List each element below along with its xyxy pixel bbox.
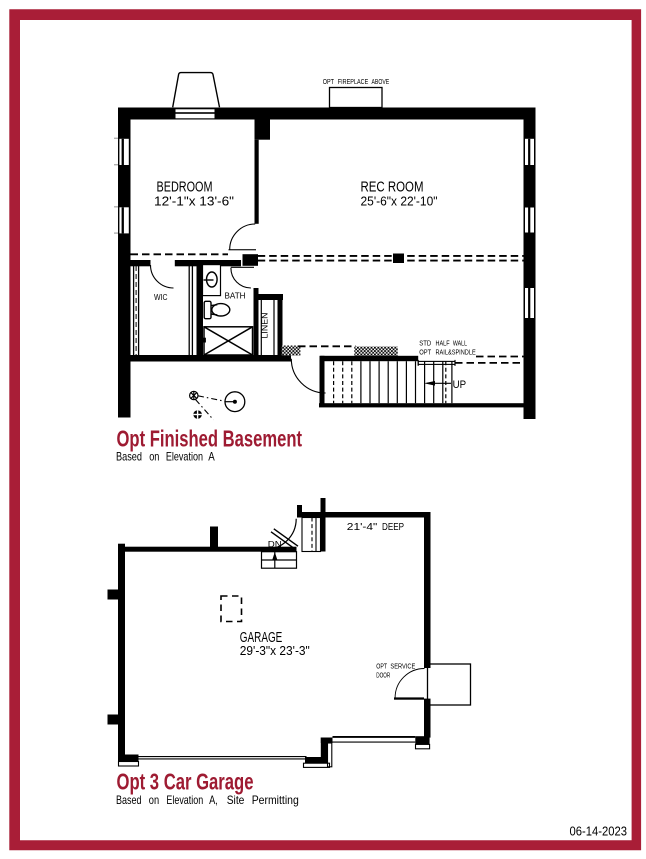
svg-text:DOOR: DOOR	[376, 671, 390, 680]
svg-text:25'-6"x 22'-10": 25'-6"x 22'-10"	[361, 195, 438, 209]
svg-text:OPTFIREPLACEABOVE: OPTFIREPLACEABOVE	[323, 77, 389, 86]
svg-text:29'-3"x 23'-3": 29'-3"x 23'-3"	[240, 644, 310, 658]
svg-text:WIC: WIC	[154, 292, 168, 302]
svg-text:12'-1"x 13'-6": 12'-1"x 13'-6"	[154, 195, 234, 209]
svg-text:OPTRAIL&SPINDLE: OPTRAIL&SPINDLE	[419, 348, 475, 357]
svg-text:BasedonElevationA: BasedonElevationA	[116, 449, 215, 463]
svg-text:DN: DN	[268, 539, 282, 549]
svg-text:OPTSERVICE: OPTSERVICE	[376, 662, 415, 671]
svg-text:LINEN: LINEN	[260, 313, 270, 339]
svg-text:STDHALFWALL: STDHALFWALL	[419, 339, 467, 348]
svg-text:Opt 3 Car Garage: Opt 3 Car Garage	[117, 769, 254, 795]
svg-text:REC ROOM: REC ROOM	[361, 179, 424, 196]
svg-text:21'-4"DEEP: 21'-4"DEEP	[347, 522, 404, 533]
svg-text:Opt Finished Basement: Opt Finished Basement	[117, 426, 303, 452]
svg-text:06-14-2023: 06-14-2023	[570, 825, 628, 839]
svg-text:BATH: BATH	[225, 291, 246, 301]
svg-text:UP: UP	[453, 379, 467, 391]
svg-text:BEDROOM: BEDROOM	[157, 179, 213, 196]
